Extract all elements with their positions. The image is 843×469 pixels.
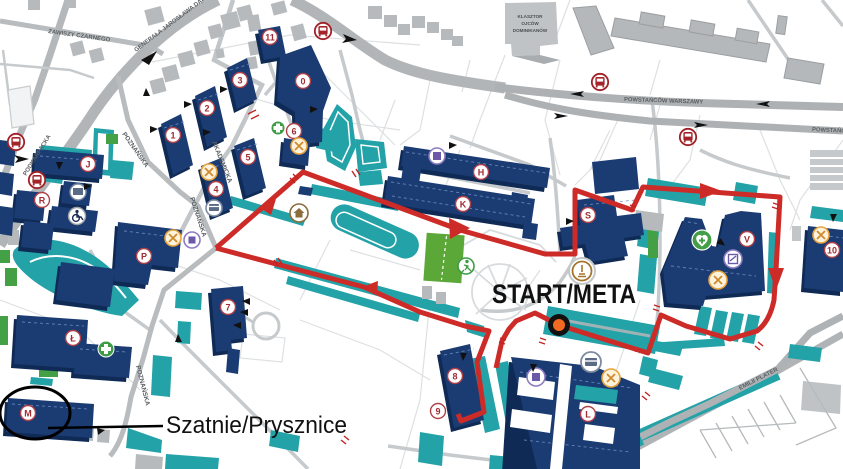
svg-text:Szatnie/Prysznice: Szatnie/Prysznice [166,412,347,439]
svg-text:R: R [39,196,46,206]
svg-text:9: 9 [435,407,440,417]
svg-text:START/META: START/META [492,279,636,309]
svg-text:7: 7 [225,303,230,313]
svg-text:Ł: Ł [70,334,76,344]
svg-text:10: 10 [827,246,837,256]
svg-text:1: 1 [170,131,175,141]
svg-text:M: M [24,409,32,419]
svg-text:0: 0 [300,77,305,87]
svg-text:L: L [585,410,591,420]
svg-text:4: 4 [213,185,218,195]
svg-text:2: 2 [204,104,209,114]
svg-text:H: H [478,168,485,178]
svg-text:5: 5 [245,153,250,163]
svg-text:OJCÓW: OJCÓW [521,19,539,26]
svg-text:S: S [585,211,591,221]
svg-text:P: P [141,252,147,262]
svg-text:3: 3 [237,76,242,86]
svg-text:V: V [744,235,750,245]
svg-text:DOMINIKANÓW: DOMINIKANÓW [513,26,548,33]
svg-text:6: 6 [291,127,296,137]
svg-text:11: 11 [265,33,275,43]
svg-text:8: 8 [452,372,457,382]
svg-text:J: J [85,160,90,170]
svg-text:K: K [460,200,467,210]
svg-text:KLASZTOR: KLASZTOR [518,14,544,19]
